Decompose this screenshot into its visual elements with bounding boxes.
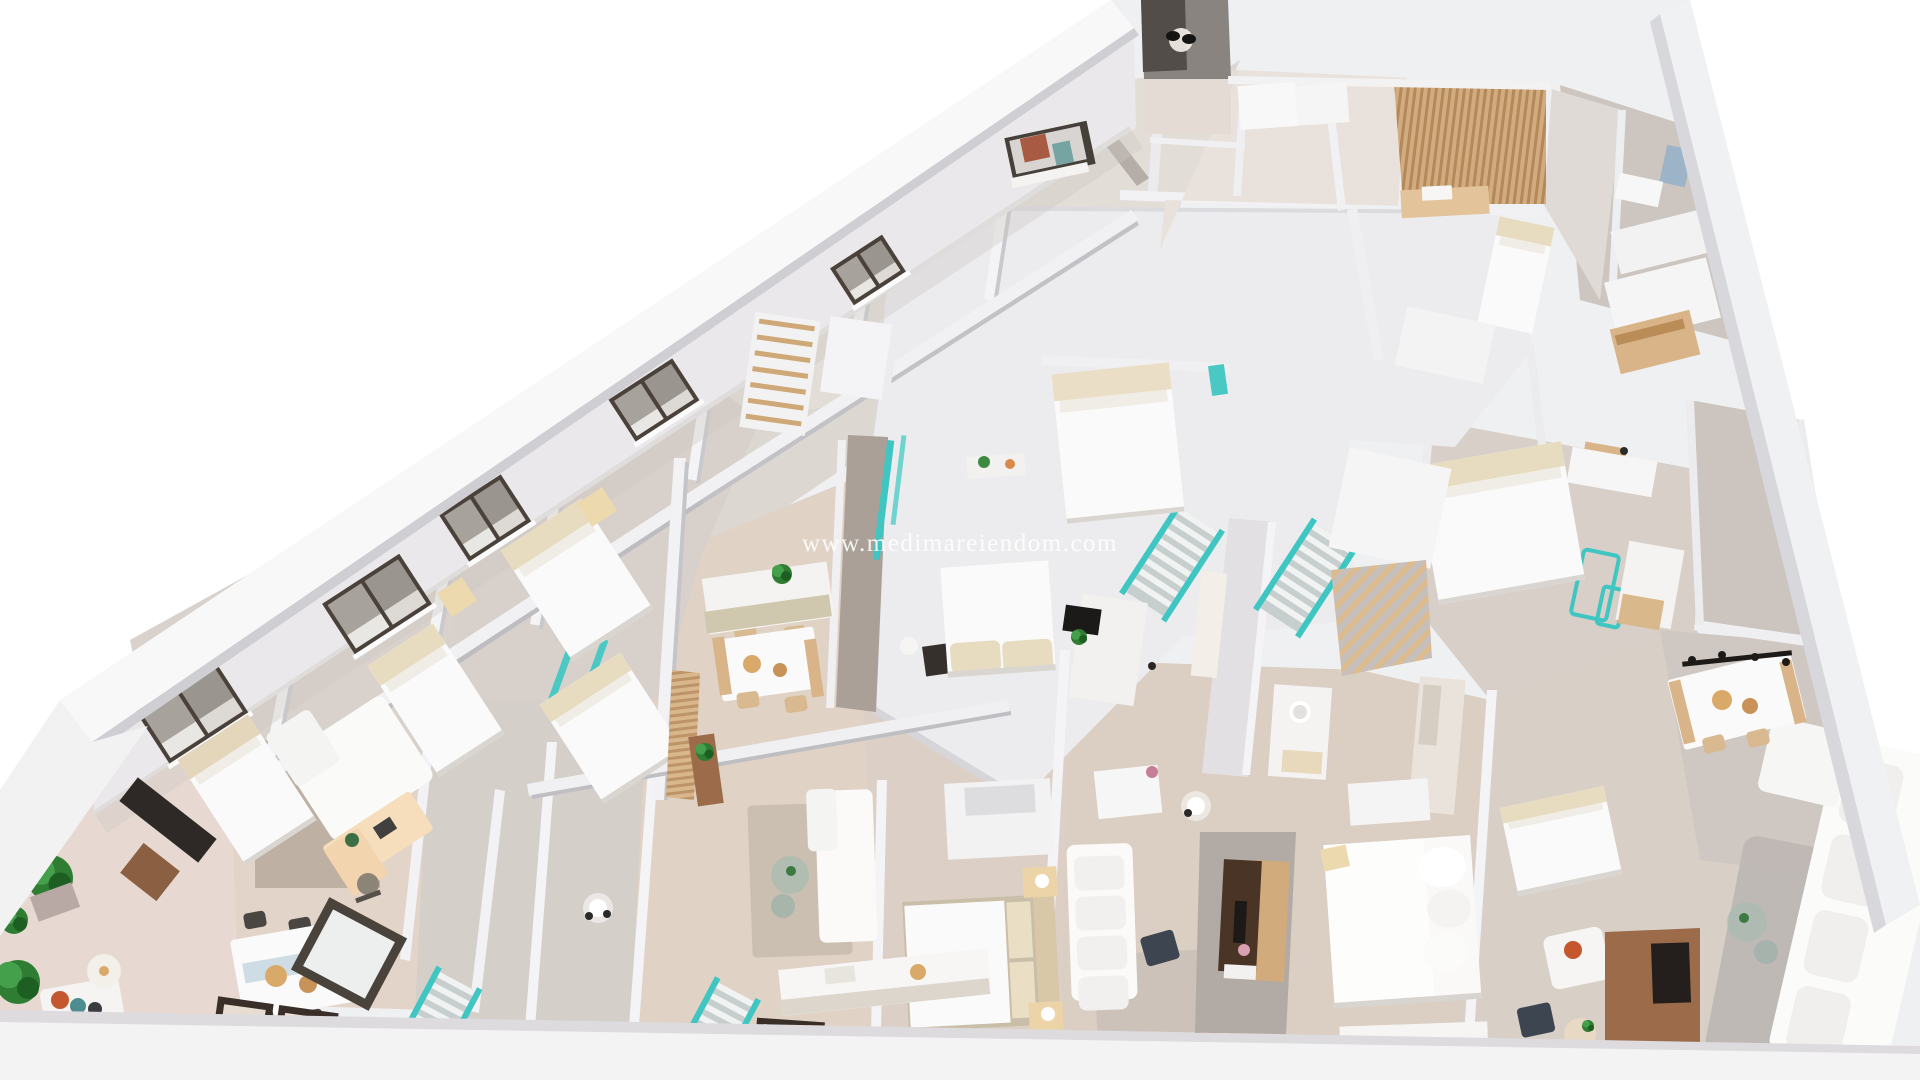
svg-text:www.medimareiendom.com: www.medimareiendom.com <box>802 530 1118 557</box>
